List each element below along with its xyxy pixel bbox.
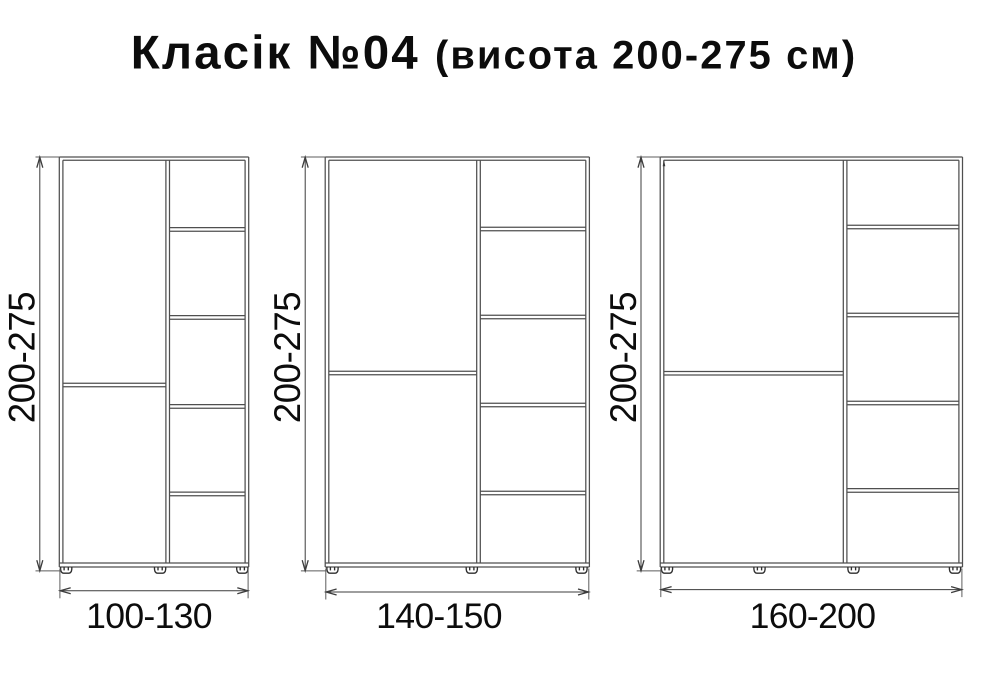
svg-text:140-150: 140-150 — [376, 596, 502, 636]
svg-text:Класік №04 (висота 200-275 см): Класік №04 (висота 200-275 см) — [131, 27, 857, 80]
svg-text:200-275: 200-275 — [603, 292, 644, 423]
svg-text:160-200: 160-200 — [750, 596, 876, 636]
svg-text:200-275: 200-275 — [2, 292, 43, 423]
svg-text:100-130: 100-130 — [86, 596, 212, 636]
svg-text:200-275: 200-275 — [267, 292, 308, 423]
